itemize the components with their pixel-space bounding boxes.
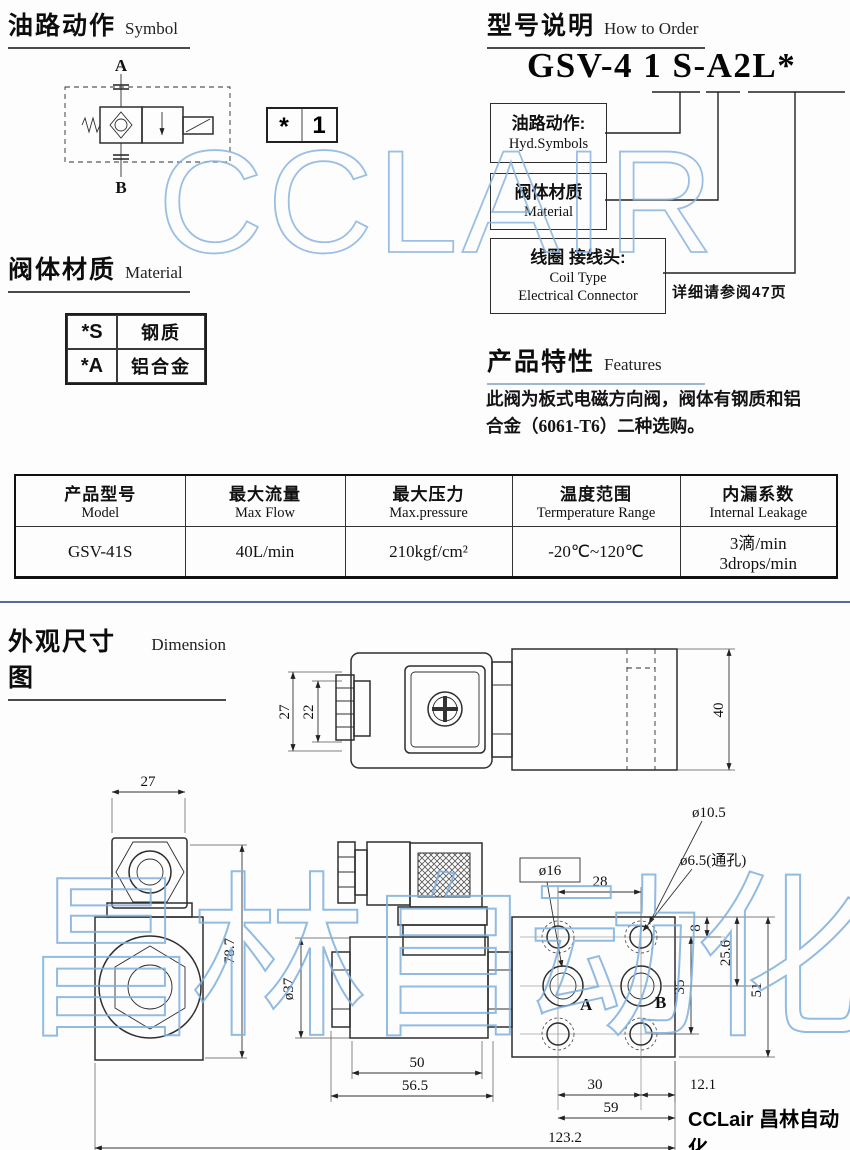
order-box2-en: Material (524, 203, 573, 221)
order-section-title: 型号说明 How to Order (487, 6, 705, 49)
spec-leak: 3滴/min3drops/min (680, 527, 837, 578)
spec-data-row: GSV-41S 40L/min 210kgf/cm² -20℃~120℃ 3滴/… (15, 527, 837, 578)
check-valve-symbol (110, 112, 132, 138)
spec-header-flow: 最大流量Max Flow (185, 475, 345, 527)
port-b-label: B (655, 993, 666, 1012)
dim-12-1: 12.1 (690, 1077, 716, 1093)
order-title-en: How to Order (604, 19, 698, 39)
hydraulic-symbol-drawing: A B * 1 (55, 55, 355, 205)
din-connector-outline (351, 653, 492, 768)
order-title-zh: 型号说明 (487, 6, 595, 42)
dim-78-7: 78.7 (222, 937, 238, 964)
dimension-title-en: Dimension (151, 635, 226, 655)
spec-header-temp: 温度范围Termperature Range (512, 475, 680, 527)
order-box1-en: Hyd.Symbols (509, 135, 588, 153)
features-title-zh: 产品特性 (487, 342, 595, 378)
dim-27-top: 27 (277, 704, 293, 720)
features-line2: 合金（6061-T6）二种选购。 (486, 413, 848, 440)
spec-header-pressure: 最大压力Max.pressure (345, 475, 512, 527)
dim-40: 40 (711, 703, 727, 718)
left-end-view: 27 78.7 (95, 774, 247, 1060)
features-line1: 此阀为板式电磁方向阀，阀体有钢质和铝 (486, 386, 848, 413)
model-code: GSV-4 1 S-A2L* (527, 46, 796, 86)
spec-model: GSV-41S (15, 527, 185, 578)
dim-59: 59 (604, 1100, 619, 1116)
datasheet-page: 油路动作 Symbol A B * 1 型号说明 How to Order GS… (0, 0, 850, 1150)
features-section-title: 产品特性 Features (487, 342, 705, 385)
dim-30: 30 (588, 1077, 603, 1093)
dim-35: 35 (672, 980, 688, 995)
dim-28: 28 (593, 874, 608, 890)
dim-22: 22 (301, 705, 317, 720)
order-box2-zh: 阀体材质 (515, 182, 583, 203)
spring-symbol (82, 118, 100, 132)
dim-27-left: 27 (141, 774, 157, 790)
spec-temp: -20℃~120℃ (512, 527, 680, 578)
material-title-zh: 阀体材质 (8, 250, 116, 286)
valve-body-plate (512, 917, 675, 1057)
spec-table: 产品型号Model 最大流量Max Flow 最大压力Max.pressure … (14, 474, 838, 579)
dim-cbore: ø10.5 (692, 805, 726, 821)
order-box3-en2: Electrical Connector (518, 287, 638, 305)
order-box1-zh: 油路动作: (512, 113, 586, 134)
material-name: 铝合金 (117, 349, 205, 383)
valve-dimension-drawing: 27 78.7 ø37 (35, 765, 840, 1150)
spec-header-leak: 内漏系数Internal Leakage (680, 475, 837, 527)
footer-logo: CCLair 昌林自动化 (688, 1103, 850, 1150)
symbol-code-star: * (279, 113, 289, 141)
order-box-symbol: 油路动作: Hyd.Symbols (490, 103, 607, 163)
port-a-label: A (580, 995, 593, 1014)
spec-header-model: 产品型号Model (15, 475, 185, 527)
order-box-coil: 线圈 接线头: Coil Type Electrical Connector (490, 238, 666, 314)
features-text: 此阀为板式电磁方向阀，阀体有钢质和铝 合金（6061-T6）二种选购。 (486, 386, 848, 440)
order-box3-en: Coil Type (549, 269, 606, 287)
dimension-title-zh: 外观尺寸图 (8, 622, 142, 694)
dim-50: 50 (410, 1055, 425, 1071)
material-table: *S 钢质 *A 铝合金 (65, 313, 207, 385)
features-title-en: Features (604, 355, 662, 375)
symbol-title-zh: 油路动作 (8, 6, 116, 42)
material-section-title: 阀体材质 Material (8, 250, 190, 293)
material-code: *A (67, 349, 117, 383)
dim-123-2: 123.2 (548, 1130, 582, 1146)
order-note: 详细请参阅47页 (672, 281, 787, 302)
dim-port-dia: ø16 (539, 863, 562, 879)
dim-thru: ø6.5(通孔) (680, 852, 746, 869)
dim-25-6: 25.6 (718, 939, 734, 966)
symbol-section-title: 油路动作 Symbol (8, 6, 190, 49)
symbol-port-b-label: B (115, 178, 126, 197)
dim-56-5: 56.5 (402, 1078, 428, 1094)
symbol-envelope-dashed (65, 87, 230, 162)
coil-cylinder (350, 937, 488, 1038)
symbol-title-en: Symbol (125, 19, 178, 39)
solenoid-coil-body (512, 649, 677, 770)
material-title-en: Material (125, 263, 183, 283)
symbol-code-num: 1 (312, 112, 325, 139)
spec-flow: 40L/min (185, 527, 345, 578)
hex-nut (492, 662, 512, 757)
dim-8: 8 (688, 924, 704, 932)
dim-51: 51 (749, 983, 765, 998)
mounting-face-view: A B ø16 28 ø10.5 ø6.5(通孔) 8 25.6 35 (512, 805, 775, 1118)
material-code: *S (67, 315, 117, 349)
section-divider (0, 601, 850, 603)
symbol-code-box: * 1 (267, 108, 337, 142)
order-box3-zh: 线圈 接线头: (530, 247, 625, 268)
material-name: 钢质 (117, 315, 205, 349)
dim-coil-dia: ø37 (281, 977, 297, 1000)
order-box-material: 阀体材质 Material (490, 173, 607, 230)
spec-pressure: 210kgf/cm² (345, 527, 512, 578)
symbol-port-a-label: A (115, 56, 128, 75)
dimension-section-title: 外观尺寸图 Dimension (8, 622, 226, 701)
connector-hatch-face (418, 853, 470, 897)
